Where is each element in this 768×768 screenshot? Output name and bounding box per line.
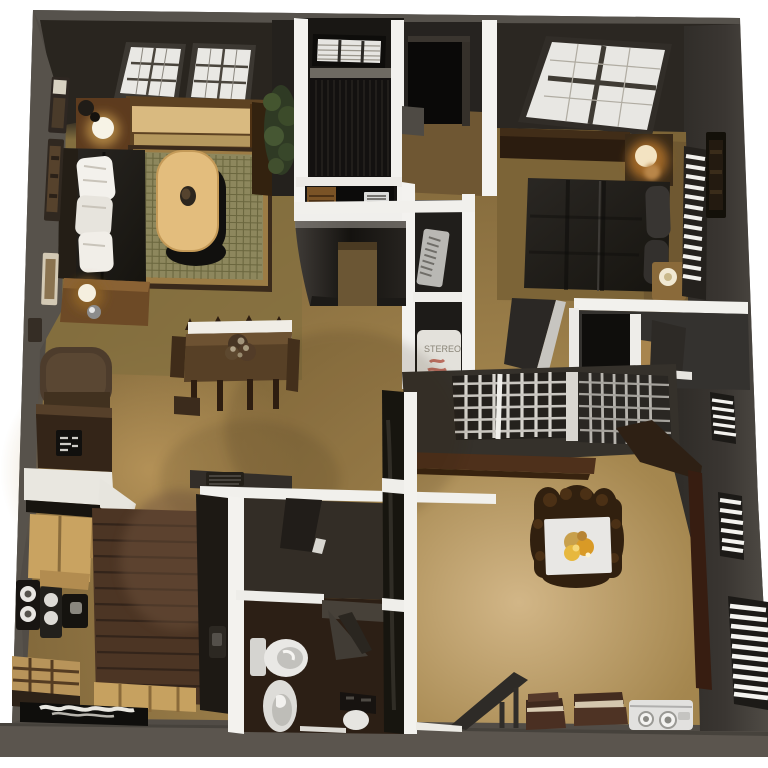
svg-text:STEREO: STEREO xyxy=(424,344,461,354)
